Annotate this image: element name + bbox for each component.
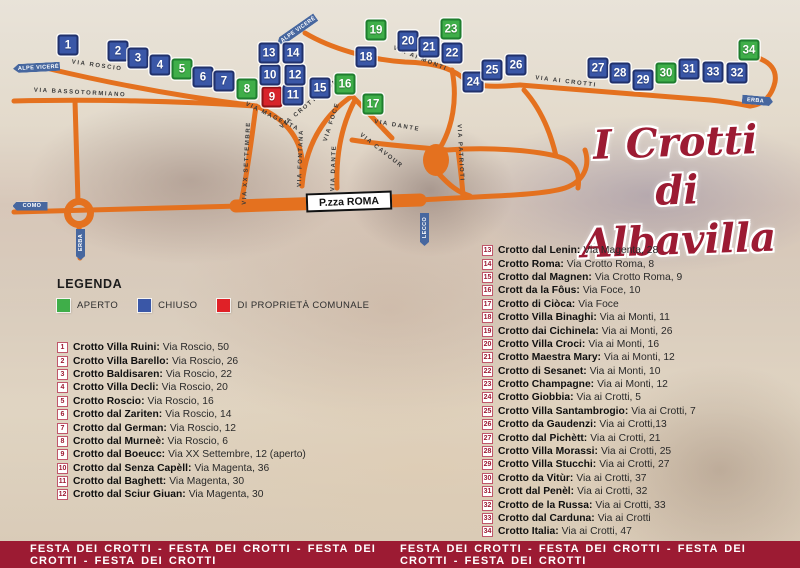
list-item: 25Crotto Villa Santambrogio:Via ai Crott…	[482, 405, 696, 418]
title-line-1: I Crotti	[560, 116, 791, 170]
list-item: 10Crotto dal Senza Capèll:Via Magenta, 3…	[57, 462, 306, 475]
list-item: 21Crotto Maestra Mary:Via ai Monti, 12	[482, 351, 696, 364]
map-marker-14: 14	[283, 43, 304, 64]
map-marker-32: 32	[727, 63, 748, 84]
legend-item-di-propriet-comunale: DI PROPRIETÀ COMUNALE	[217, 299, 369, 312]
item-address: Via Magenta, 36	[194, 463, 269, 474]
item-number-badge: 8	[57, 436, 68, 447]
road-sign-como: COMO	[13, 202, 48, 211]
item-name: Crotto dal Lenin:	[498, 245, 580, 256]
map-marker-33: 33	[703, 62, 724, 83]
road-sign-erba: ERBA	[76, 229, 85, 260]
list-item: 20Crotto Villa Croci:Via ai Monti, 16	[482, 338, 696, 351]
list-item: 27Crotto dal Pichètt:Via ai Crotti, 21	[482, 431, 696, 444]
item-number-badge: 2	[57, 356, 68, 367]
item-number-badge: 9	[57, 449, 68, 460]
item-name: Crotto Villa Ruini:	[73, 342, 160, 353]
item-address: Via Magenta, 28	[583, 245, 658, 256]
item-address: Via ai Crotti, 5	[577, 392, 641, 403]
item-name: Crotto dal Pichètt:	[498, 433, 587, 444]
legend-item-label: APERTO	[77, 300, 118, 311]
item-address: Via Roscio, 26	[172, 356, 238, 367]
list-item: 17Crotto di Ciòca:Via Foce	[482, 298, 696, 311]
list-item: 9Crotto dal Boeucc:Via XX Settembre, 12 …	[57, 448, 306, 461]
item-number-badge: 22	[482, 366, 493, 377]
list-item: 12Crotto dal Sciur Giuan:Via Magenta, 30	[57, 488, 306, 501]
item-address: Via Foce, 10	[583, 285, 641, 296]
item-address: Via ai Crotti, 27	[599, 459, 669, 470]
item-number-badge: 4	[57, 382, 68, 393]
map-marker-7: 7	[214, 71, 235, 92]
map-marker-8: 8	[237, 79, 258, 100]
item-name: Crotto Italia:	[498, 526, 559, 537]
item-name: Crotto dai Cichinela:	[498, 326, 599, 337]
item-name: Crotto Maestra Mary:	[498, 352, 601, 363]
list-item: 24Crotto Giobbia:Via ai Crotti, 5	[482, 391, 696, 404]
item-name: Crotto dal Baghett:	[73, 476, 166, 487]
item-name: Crotto dal Zariten:	[73, 409, 162, 420]
footer-banner: FESTA DEI CROTTI - FESTA DEI CROTTI - FE…	[0, 541, 800, 568]
item-number-badge: 1	[57, 342, 68, 353]
item-address: Via ai Monti, 10	[590, 366, 661, 377]
map-marker-2: 2	[108, 41, 129, 62]
item-name: Crotto dal German:	[73, 423, 167, 434]
item-name: Crotto dal Boeucc:	[73, 449, 165, 460]
festival-poster: VIA ROSCIOVIA BASSOTORMIANOVIA MAGENTAVI…	[0, 0, 800, 568]
item-name: Crott dal Penèl:	[498, 486, 574, 497]
item-name: Crotto dal Senza Capèll:	[73, 463, 191, 474]
item-address: Via Roscio, 16	[148, 396, 214, 407]
footer-text-left: FESTA DEI CROTTI - FESTA DEI CROTTI - FE…	[30, 543, 400, 567]
item-name: Crotto Roscio:	[73, 396, 145, 407]
item-name: Crotto di Sesanet:	[498, 366, 587, 377]
item-name: Crotto dal Murneè:	[73, 436, 165, 447]
item-address: Via Crotto Roma, 8	[567, 259, 654, 270]
item-name: Crotto Villa Morassi:	[498, 446, 598, 457]
map-marker-15: 15	[310, 78, 331, 99]
map-marker-4: 4	[150, 55, 171, 76]
item-number-badge: 13	[482, 245, 493, 256]
item-name: Crotto Villa Stucchi:	[498, 459, 596, 470]
map-marker-20: 20	[398, 31, 419, 52]
item-number-badge: 19	[482, 326, 493, 337]
map-marker-21: 21	[419, 37, 440, 58]
item-number-badge: 10	[57, 463, 68, 474]
legend-item-label: DI PROPRIETÀ COMUNALE	[237, 300, 369, 311]
map-marker-24: 24	[463, 72, 484, 93]
item-number-badge: 6	[57, 409, 68, 420]
map-marker-11: 11	[283, 85, 304, 106]
crotti-list-left: 1Crotto Villa Ruini:Via Roscio, 502Crott…	[57, 341, 306, 502]
list-item: 30Crotto da Vitùr:Via ai Crotti, 37	[482, 472, 696, 485]
item-name: Crotto dal Magnen:	[498, 272, 592, 283]
legend-item-aperto: APERTO	[57, 299, 118, 312]
item-number-badge: 28	[482, 446, 493, 457]
item-number-badge: 16	[482, 285, 493, 296]
legend: LEGENDA APERTOCHIUSODI PROPRIETÀ COMUNAL…	[57, 277, 369, 312]
legend-color-swatch	[138, 299, 151, 312]
item-address: Via ai Crotti, 21	[590, 433, 660, 444]
list-item: 23Crotto Champagne:Via ai Monti, 12	[482, 378, 696, 391]
list-item: 18Crotto Villa Binaghi:Via ai Monti, 11	[482, 311, 696, 324]
list-item: 13Crotto dal Lenin:Via Magenta, 28	[482, 244, 696, 257]
item-address: Via Roscio, 14	[165, 409, 231, 420]
list-item: 29Crotto Villa Stucchi:Via ai Crotti, 27	[482, 458, 696, 471]
item-address: Via XX Settembre, 12 (aperto)	[168, 449, 306, 460]
item-number-badge: 26	[482, 419, 493, 430]
item-number-badge: 27	[482, 433, 493, 444]
item-address: Via ai Crotti	[598, 513, 651, 524]
item-address: Via ai Crotti, 25	[601, 446, 671, 457]
item-address: Via ai Monti, 12	[597, 379, 668, 390]
list-item: 32Crotto de la Russa:Via ai Crotti, 33	[482, 498, 696, 511]
map-marker-27: 27	[588, 58, 609, 79]
map-marker-12: 12	[285, 65, 306, 86]
item-name: Crotto Villa Barello:	[73, 356, 169, 367]
item-number-badge: 5	[57, 396, 68, 407]
item-number-badge: 29	[482, 459, 493, 470]
list-item: 5Crotto Roscio:Via Roscio, 16	[57, 395, 306, 408]
legend-color-swatch	[217, 299, 230, 312]
item-number-badge: 21	[482, 352, 493, 363]
map-marker-13: 13	[259, 43, 280, 64]
map-marker-18: 18	[356, 47, 377, 68]
item-name: Crotto de la Russa:	[498, 500, 592, 511]
item-name: Crotto Villa Croci:	[498, 339, 585, 350]
map-marker-23: 23	[441, 19, 462, 40]
item-address: Via ai Crotti, 37	[576, 473, 646, 484]
list-item: 11Crotto dal Baghett:Via Magenta, 30	[57, 475, 306, 488]
item-number-badge: 31	[482, 486, 493, 497]
crotti-list-right: 13Crotto dal Lenin:Via Magenta, 2814Crot…	[482, 244, 696, 539]
item-number-badge: 33	[482, 513, 493, 524]
legend-item-chiuso: CHIUSO	[138, 299, 197, 312]
list-item: 6Crotto dal Zariten:Via Roscio, 14	[57, 408, 306, 421]
list-item: 28Crotto Villa Morassi:Via ai Crotti, 25	[482, 445, 696, 458]
item-address: Via Roscio, 20	[162, 382, 228, 393]
item-name: Crotto Villa Decli:	[73, 382, 159, 393]
item-number-badge: 34	[482, 526, 493, 537]
item-address: Via Roscio, 12	[170, 423, 236, 434]
map-marker-25: 25	[482, 60, 503, 81]
legend-heading: LEGENDA	[57, 277, 369, 291]
item-number-badge: 7	[57, 423, 68, 434]
list-item: 33Crotto dal Carduna:Via ai Crotti	[482, 512, 696, 525]
legend-color-swatch	[57, 299, 70, 312]
piazza-roma-label: P.zza ROMA	[306, 191, 393, 213]
item-name: Crotto Villa Binaghi:	[498, 312, 597, 323]
list-item: 31Crott dal Penèl:Via ai Crotti, 32	[482, 485, 696, 498]
item-name: Crotto Villa Santambrogio:	[498, 406, 628, 417]
map-marker-3: 3	[128, 48, 149, 69]
item-number-badge: 15	[482, 272, 493, 283]
item-number-badge: 11	[57, 476, 68, 487]
item-address: Via Roscio, 6	[168, 436, 228, 447]
item-name: Crotto Roma:	[498, 259, 564, 270]
item-address: Via ai Crotti, 32	[577, 486, 647, 497]
item-number-badge: 32	[482, 500, 493, 511]
item-address: Via Crotto Roma, 9	[595, 272, 682, 283]
list-item: 14Crotto Roma:Via Crotto Roma, 8	[482, 257, 696, 270]
road-sign-lecco: LECCO	[420, 213, 429, 246]
item-name: Crott da la Fôus:	[498, 285, 580, 296]
map-marker-1: 1	[58, 35, 79, 56]
item-address: Via ai Crotti, 47	[562, 526, 632, 537]
item-address: Via ai Crotti, 7	[631, 406, 695, 417]
map-marker-6: 6	[193, 67, 214, 88]
list-item: 1Crotto Villa Ruini:Via Roscio, 50	[57, 341, 306, 354]
map-marker-29: 29	[633, 70, 654, 91]
list-item: 3Crotto Baldisaren:Via Roscio, 22	[57, 368, 306, 381]
list-item: 19Crotto dai Cichinela:Via ai Monti, 26	[482, 324, 696, 337]
item-number-badge: 17	[482, 299, 493, 310]
map-marker-34: 34	[739, 40, 760, 61]
item-name: Crotto dal Carduna:	[498, 513, 595, 524]
item-number-badge: 20	[482, 339, 493, 350]
list-item: 26Crotto da Gaudenzi:Via ai Crotti,13	[482, 418, 696, 431]
list-item: 15Crotto dal Magnen:Via Crotto Roma, 9	[482, 271, 696, 284]
list-item: 34Crotto Italia:Via ai Crotti, 47	[482, 525, 696, 538]
item-address: Via Magenta, 30	[189, 489, 264, 500]
item-number-badge: 14	[482, 259, 493, 270]
item-number-badge: 24	[482, 392, 493, 403]
item-number-badge: 30	[482, 473, 493, 484]
item-name: Crotto da Gaudenzi:	[498, 419, 596, 430]
list-item: 7Crotto dal German:Via Roscio, 12	[57, 421, 306, 434]
item-number-badge: 25	[482, 406, 493, 417]
item-number-badge: 12	[57, 489, 68, 500]
item-address: Via ai Monti, 16	[588, 339, 659, 350]
item-address: Via ai Crotti,13	[599, 419, 666, 430]
map-marker-31: 31	[679, 59, 700, 80]
item-address: Via ai Monti, 11	[600, 312, 670, 323]
footer-text-right: FESTA DEI CROTTI - FESTA DEI CROTTI - FE…	[400, 543, 770, 567]
item-address: Via ai Monti, 26	[602, 326, 673, 337]
item-name: Crotto da Vitùr:	[498, 473, 573, 484]
item-name: Crotto dal Sciur Giuan:	[73, 489, 186, 500]
list-item: 8Crotto dal Murneè:Via Roscio, 6	[57, 435, 306, 448]
map-marker-19: 19	[366, 20, 387, 41]
map-marker-9: 9	[262, 87, 283, 108]
map-marker-5: 5	[172, 59, 193, 80]
legend-item-label: CHIUSO	[158, 300, 197, 311]
map-marker-17: 17	[363, 94, 384, 115]
item-address: Via ai Monti, 12	[604, 352, 675, 363]
map-marker-22: 22	[442, 43, 463, 64]
list-item: 4Crotto Villa Decli:Via Roscio, 20	[57, 381, 306, 394]
item-name: Crotto di Ciòca:	[498, 299, 575, 310]
map-marker-30: 30	[656, 63, 677, 84]
legend-items: APERTOCHIUSODI PROPRIETÀ COMUNALE	[57, 299, 369, 312]
item-address: Via Magenta, 30	[169, 476, 244, 487]
list-item: 2Crotto Villa Barello:Via Roscio, 26	[57, 354, 306, 367]
map-marker-10: 10	[260, 65, 281, 86]
item-number-badge: 3	[57, 369, 68, 380]
item-number-badge: 18	[482, 312, 493, 323]
list-item: 22Crotto di Sesanet:Via ai Monti, 10	[482, 365, 696, 378]
item-name: Crotto Giobbia:	[498, 392, 574, 403]
item-address: Via Foce	[578, 299, 618, 310]
item-name: Crotto Champagne:	[498, 379, 594, 390]
item-address: Via ai Crotti, 33	[595, 500, 665, 511]
map-marker-26: 26	[506, 55, 527, 76]
map-marker-16: 16	[335, 74, 356, 95]
item-number-badge: 23	[482, 379, 493, 390]
item-name: Crotto Baldisaren:	[73, 369, 163, 380]
list-item: 16Crott da la Fôus:Via Foce, 10	[482, 284, 696, 297]
item-address: Via Roscio, 22	[166, 369, 232, 380]
item-address: Via Roscio, 50	[163, 342, 229, 353]
map-marker-28: 28	[610, 63, 631, 84]
